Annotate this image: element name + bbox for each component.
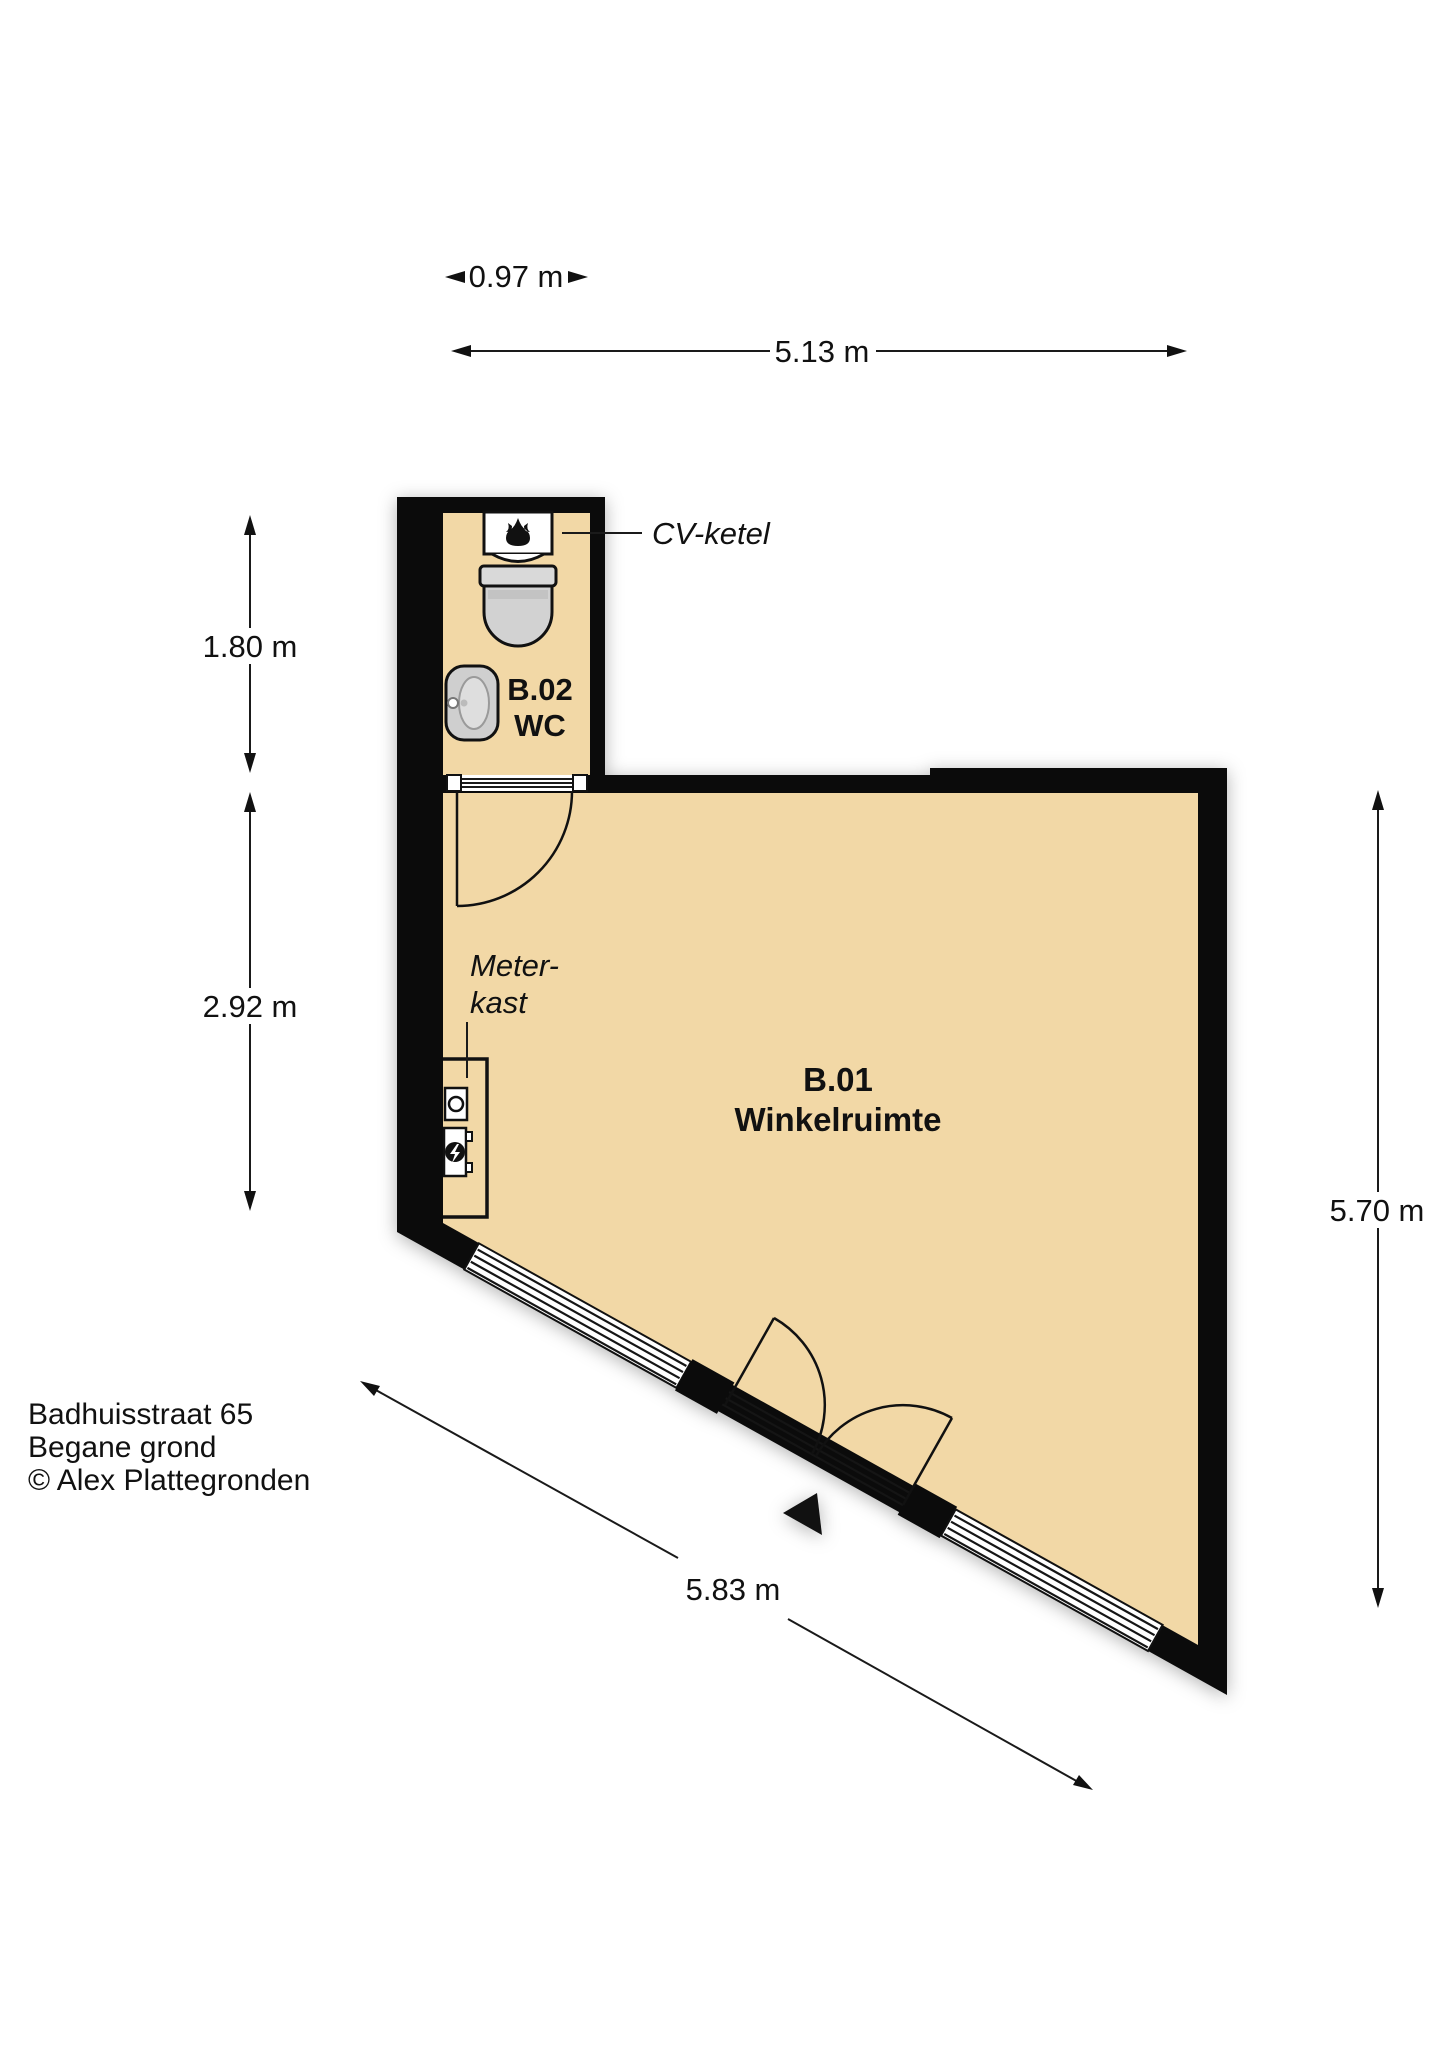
dimension-shop-left-depth-label: 2.92 m: [203, 989, 298, 1024]
dimension-wc-depth: 1.80 m: [203, 515, 298, 773]
meterkast-label-line2: kast: [470, 985, 528, 1020]
dimension-wc-depth-label: 1.80 m: [203, 629, 298, 664]
dimension-storefront-width-label: 5.83 m: [686, 1572, 781, 1607]
cv-ketel-label: CV-ketel: [652, 516, 771, 551]
arrow-up-icon: [244, 792, 256, 812]
footer-credit: © Alex Plattegronden: [28, 1464, 310, 1497]
arrow-right-icon: [1167, 345, 1187, 357]
floor-plan-svg: B.02 WC B.01 Winkelruimte CV-ketel Meter…: [0, 0, 1448, 2048]
wc-room-name: WC: [514, 708, 566, 743]
footer-floor: Begane grond: [28, 1431, 217, 1464]
gas-meter-icon: [445, 1088, 467, 1120]
sink-faucet: [448, 698, 458, 708]
arrow-left-icon: [451, 345, 471, 357]
sink-icon: [446, 666, 498, 740]
cv-boiler: [484, 512, 552, 562]
dimension-wc-width: 0.97 m: [445, 259, 588, 294]
wc-door-post-left: [447, 775, 461, 791]
arrow-up-icon: [1372, 790, 1384, 810]
floor-plan-page: B.02 WC B.01 Winkelruimte CV-ketel Meter…: [0, 0, 1448, 2048]
arrow-upleft-icon: [360, 1381, 380, 1396]
footer-address: Badhuisstraat 65: [28, 1398, 253, 1431]
arrow-downright-icon: [1073, 1775, 1093, 1790]
meterkast-label-line1: Meter-: [470, 948, 559, 983]
dimension-wc-width-label: 0.97 m: [469, 259, 564, 294]
dimension-right-depth-label: 5.70 m: [1330, 1193, 1425, 1228]
entrance-arrow-icon: [783, 1493, 822, 1535]
wc-room-code: B.02: [507, 672, 572, 707]
shop-room-name: Winkelruimte: [735, 1101, 942, 1138]
toilet-icon: [480, 566, 556, 646]
arrow-down-icon: [1372, 1588, 1384, 1608]
dimension-building-width: 5.13 m: [451, 334, 1187, 369]
shop-floor: [443, 793, 1198, 1645]
dimension-right-depth: 5.70 m: [1330, 790, 1425, 1608]
arrow-down-icon: [244, 753, 256, 773]
shop-room-code: B.01: [803, 1061, 873, 1098]
wc-door-post-right: [573, 775, 587, 791]
sink-drain: [461, 700, 468, 707]
toilet-tank: [480, 566, 556, 586]
arrow-right-icon: [568, 271, 588, 283]
dimension-building-width-label: 5.13 m: [775, 334, 870, 369]
toilet-seat-shade: [488, 590, 548, 599]
arrow-up-icon: [244, 515, 256, 535]
arrow-left-icon: [445, 271, 465, 283]
arrow-down-icon: [244, 1191, 256, 1211]
dimension-shop-left-depth: 2.92 m: [203, 792, 298, 1211]
